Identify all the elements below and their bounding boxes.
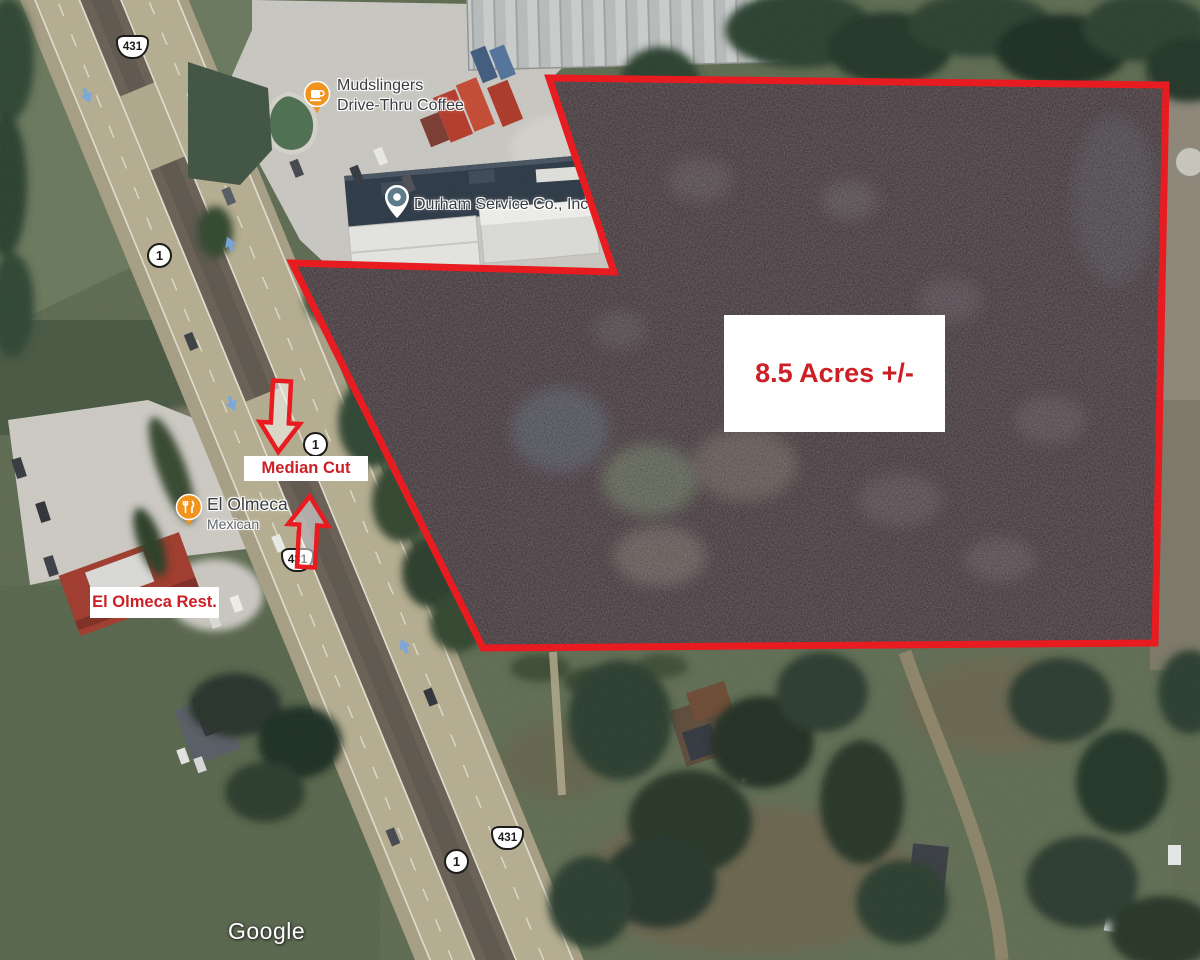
google-watermark: Google xyxy=(228,918,305,945)
shield-label: 1 xyxy=(312,437,319,452)
route-shield-1-mid: 1 xyxy=(303,432,328,457)
fork-knife-icon xyxy=(175,493,203,529)
restaurant-label: El Olmeca Rest. xyxy=(92,593,217,612)
poi-label-durham: Durham Service Co., Inc xyxy=(414,195,588,215)
durham-label: Durham Service Co., Inc xyxy=(414,196,588,213)
median-cut-label: Median Cut xyxy=(262,459,351,478)
shield-label: 1 xyxy=(156,248,163,263)
map-pin-icon xyxy=(383,184,411,220)
property-aerial-map: Mudslingers Drive-Thru Coffee Durham Ser… xyxy=(0,0,1200,960)
route-shield-1-upper: 1 xyxy=(147,243,172,268)
shield-label: 431 xyxy=(123,41,142,53)
poi-label-mudslingers: Mudslingers Drive-Thru Coffee xyxy=(337,76,464,116)
acreage-label-box: 8.5 Acres +/- xyxy=(724,315,945,432)
mudslingers-line1: Mudslingers xyxy=(337,76,464,96)
poi-label-el-olmeca: El Olmeca Mexican xyxy=(207,494,288,534)
global-grain xyxy=(0,0,1200,960)
attribution-text: Google xyxy=(228,918,305,944)
el-olmeca-subtitle: Mexican xyxy=(207,514,288,534)
median-cut-label-box: Median Cut xyxy=(244,456,368,481)
satellite-imagery xyxy=(0,0,1200,960)
el-olmeca-title: El Olmeca xyxy=(207,494,288,514)
coffee-cup-icon xyxy=(303,80,331,116)
shield-label: 431 xyxy=(288,554,307,566)
shield-label: 1 xyxy=(453,854,460,869)
restaurant-label-box: El Olmeca Rest. xyxy=(90,587,219,618)
route-shield-1-bottom: 1 xyxy=(444,849,469,874)
acreage-label: 8.5 Acres +/- xyxy=(755,358,914,389)
mudslingers-line2: Drive-Thru Coffee xyxy=(337,96,464,116)
shield-label: 431 xyxy=(498,832,517,844)
